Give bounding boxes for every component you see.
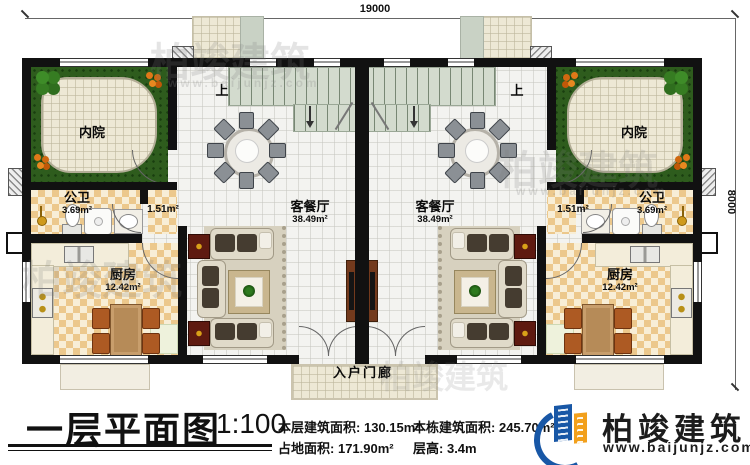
- wall: [693, 58, 702, 364]
- wall: [582, 234, 702, 243]
- window: [203, 355, 267, 364]
- wall: [547, 58, 556, 150]
- entry-porch-label: 入户门廊: [318, 366, 408, 381]
- wall: [521, 355, 576, 364]
- floor-drain-icon: [37, 216, 47, 226]
- sofa-cushion: [237, 323, 257, 340]
- title-underline-thin: [8, 450, 272, 451]
- dining-chair: [269, 143, 286, 158]
- stair-direction-line: [413, 106, 415, 122]
- wall: [664, 355, 702, 364]
- kitchen-chair: [142, 333, 160, 354]
- wall: [178, 226, 187, 364]
- sofa-cushion: [489, 323, 509, 340]
- kitchen-chair: [564, 333, 582, 354]
- side-cabinet: [514, 234, 536, 259]
- kitchen-chair: [614, 333, 632, 354]
- wall: [140, 182, 148, 204]
- sofa-cushion: [202, 288, 219, 308]
- stove: [671, 288, 692, 318]
- room-label-bath-left: 公卫3.69m²: [49, 191, 105, 216]
- tv-screen: [349, 272, 354, 310]
- wall: [576, 182, 584, 204]
- dining-chair: [438, 143, 455, 158]
- drain-stem: [682, 206, 684, 217]
- wall: [537, 226, 546, 364]
- wall: [22, 182, 177, 190]
- room-label-hall-right: 1.51m²: [550, 204, 596, 215]
- shower-drain-icon: [94, 217, 103, 226]
- sheet-scale: 1:100: [216, 408, 286, 440]
- kitchen-sink: [64, 246, 94, 263]
- tv-screen: [370, 272, 375, 310]
- kitchen-chair: [142, 308, 160, 329]
- sofa-cushion: [489, 234, 509, 252]
- room-label-kitchen-left: 厨房12.42m²: [95, 268, 151, 293]
- flower-icon: [34, 154, 41, 161]
- sofa-pillow: [452, 322, 465, 338]
- tree-icon: [36, 71, 49, 84]
- side-cabinet: [514, 321, 536, 346]
- wall-pier: [700, 168, 716, 196]
- flower-icon: [146, 72, 153, 79]
- logo-building-blue-icon: [554, 404, 572, 442]
- wall: [474, 58, 576, 67]
- room-label-hall-left: 1.51m²: [140, 204, 186, 215]
- floor-plan-sheet: 19000 8000: [0, 0, 750, 465]
- side-cabinet: [188, 234, 210, 259]
- dim-tick: [731, 10, 739, 18]
- dining-chair: [470, 112, 485, 129]
- sofa-cushion: [505, 288, 522, 308]
- sofa-cushion: [215, 323, 235, 340]
- dim-tick: [21, 10, 29, 18]
- window: [457, 355, 521, 364]
- wall: [547, 182, 702, 190]
- stat-footprint-area: 占地面积: 171.90m²: [278, 438, 394, 457]
- side-terrace: [574, 364, 664, 390]
- floor-drain-icon: [677, 216, 687, 226]
- kitchen-table: [582, 304, 614, 356]
- stairs-up-label-left: 上: [214, 84, 230, 99]
- wall: [22, 234, 142, 243]
- window: [60, 58, 148, 67]
- stair-arrow-icon: [410, 121, 418, 128]
- brand-logo-icon: [532, 399, 600, 459]
- round-table-center: [235, 139, 259, 163]
- side-terrace: [60, 364, 150, 390]
- dining-chair: [239, 112, 254, 129]
- room-label-living-right: 客餐厅38.49m²: [405, 200, 465, 225]
- dining-chair: [470, 172, 485, 189]
- dining-chair: [207, 143, 224, 158]
- sofa-cushion: [467, 323, 487, 340]
- plant-icon: [469, 285, 481, 297]
- stat-floor-area: 本层建筑面积: 130.15m²: [278, 417, 420, 436]
- rear-porch: [192, 16, 242, 60]
- window: [576, 355, 664, 364]
- staircase: [228, 67, 357, 106]
- window: [693, 262, 702, 302]
- sofa-cushion: [237, 234, 257, 252]
- party-wall: [355, 58, 369, 364]
- wall: [148, 58, 250, 67]
- room-label-kitchen-right: 厨房12.42m²: [592, 268, 648, 293]
- dim-width-label: 19000: [340, 3, 410, 15]
- round-table-center: [465, 139, 489, 163]
- staircase: [367, 67, 496, 106]
- rear-porch: [482, 16, 532, 60]
- brand-url: www.baijunjz.com: [603, 439, 750, 455]
- logo-building-orange-icon: [574, 412, 587, 443]
- room-label-courtyard-left: 内院: [70, 126, 114, 141]
- wall: [22, 355, 60, 364]
- dim-height-label: 8000: [725, 182, 737, 222]
- window: [60, 355, 148, 364]
- wall: [425, 355, 457, 364]
- rear-porch-step: [240, 16, 264, 60]
- kitchen-chair: [92, 333, 110, 354]
- window: [384, 58, 410, 67]
- kitchen-chair: [614, 308, 632, 329]
- sofa-cushion: [215, 234, 235, 252]
- tree-icon: [675, 71, 688, 84]
- dining-chair: [500, 143, 517, 158]
- kitchen-sink: [630, 246, 660, 263]
- stat-floor-height: 层高: 3.4m: [413, 438, 477, 457]
- wall: [267, 355, 299, 364]
- window: [576, 58, 664, 67]
- sofa-pillow: [259, 322, 272, 338]
- stairs-up-label-right: 上: [509, 84, 525, 99]
- room-label-courtyard-right: 内院: [612, 126, 656, 141]
- window: [22, 262, 31, 302]
- sofa-cushion: [505, 266, 522, 286]
- stair-direction-line: [309, 106, 311, 122]
- wall: [410, 58, 448, 67]
- kitchen-chair: [92, 308, 110, 329]
- dim-line-top: [25, 18, 736, 19]
- rear-porch-step: [460, 16, 484, 60]
- wall: [168, 58, 177, 150]
- window: [314, 58, 340, 67]
- title-underline: [8, 444, 272, 447]
- flower-icon: [683, 154, 690, 161]
- kitchen-table: [110, 304, 142, 356]
- wall: [148, 355, 203, 364]
- window: [250, 58, 276, 67]
- dining-chair: [239, 172, 254, 189]
- sofa-cushion: [202, 266, 219, 286]
- side-cabinet: [188, 321, 210, 346]
- kitchen-chair: [564, 308, 582, 329]
- window: [448, 58, 474, 67]
- sofa-pillow: [259, 232, 272, 249]
- flower-icon: [571, 72, 578, 79]
- stair-arrow-icon: [306, 121, 314, 128]
- room-label-living-left: 客餐厅38.49m²: [280, 200, 340, 225]
- drain-stem: [40, 206, 42, 217]
- sofa-pillow: [452, 232, 465, 249]
- wall: [22, 58, 31, 364]
- shower-drain-icon: [621, 217, 630, 226]
- sofa-cushion: [467, 234, 487, 252]
- plant-icon: [243, 285, 255, 297]
- wall: [276, 58, 314, 67]
- stove: [32, 288, 53, 318]
- room-label-bath-right: 公卫3.69m²: [624, 191, 680, 216]
